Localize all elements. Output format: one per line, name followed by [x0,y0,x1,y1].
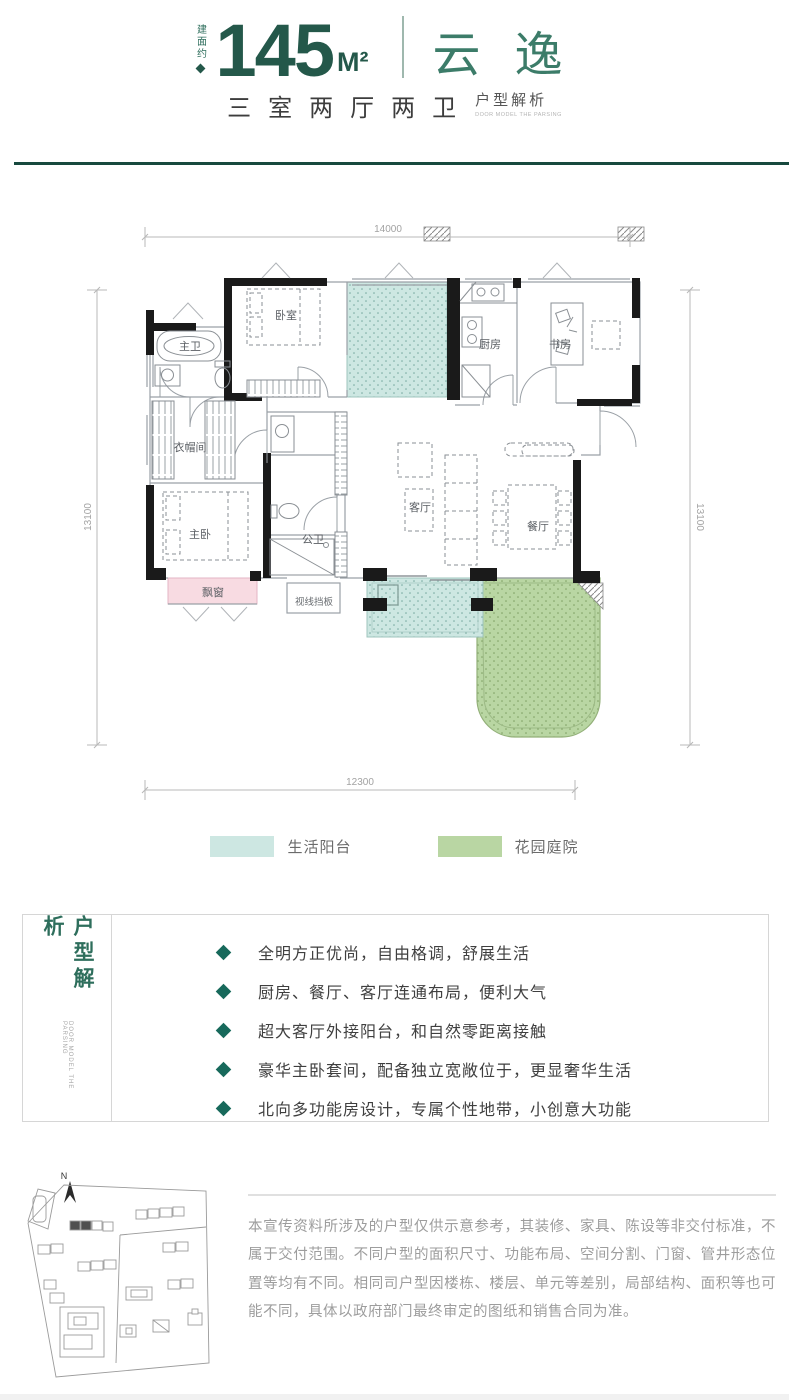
dim-bottom: 12300 [346,777,374,788]
label-living-room: 客厅 [409,500,431,514]
subtitle-tag-text: 户型解析 [475,89,562,110]
analysis-side-title: 户型解析 DOOR MODEL THE PARSING [23,915,112,1121]
dim-left: 13100 [83,503,94,531]
area-unit: M² [337,47,368,78]
diamond-bullet-icon [216,1022,232,1038]
bullet-text: 超大客厅外接阳台，和自然零距离接触 [258,1018,547,1042]
diamond-bullet-icon [216,983,232,999]
header: 建面约 145 M² 云逸 [0,16,789,82]
legend-label-balcony: 生活阳台 [287,836,351,857]
dim-top: 14000 [374,224,402,235]
bullet-text: 厨房、餐厅、客厅连通布局，便利大气 [258,979,547,1003]
bullet-row: 北向多功能房设计，专属个性地带，小创意大功能 [218,1096,758,1120]
legend-item-garden: 花园庭院 [438,836,579,857]
label-kitchen: 厨房 [479,338,501,351]
analysis-panel: 户型解析 DOOR MODEL THE PARSING 全明方正优尚，自由格调，… [22,914,769,1122]
compass-label: N [61,1171,68,1181]
legend: 生活阳台 花园庭院 [0,836,789,857]
subtitle-tag: 户型解析 DOOR MODEL THE PARSING [475,89,562,118]
bullet-text: 全明方正优尚，自由格调，舒展生活 [258,940,530,964]
label-cloakroom: 衣帽间 [174,440,207,454]
label-bay-window: 飘窗 [202,585,224,599]
bullet-text: 北向多功能房设计，专属个性地带，小创意大功能 [258,1096,632,1120]
floor-plan: 主卫 卧室 厨房 书房 衣帽间 主卧 公卫 客厅 餐厅 飘窗 视线挡板 1400… [0,215,789,815]
layout-subtitle: 三室两厅两卫 [227,88,473,123]
legend-item-balcony: 生活阳台 [210,836,351,857]
label-study: 书房 [549,338,571,351]
north-arrow-icon [64,1181,76,1203]
bullet-row: 厨房、餐厅、客厅连通布局，便利大气 [218,979,758,1003]
vertical-divider [402,16,404,78]
diamond-bullet-icon [216,1061,232,1077]
header-divider-rule [14,162,789,165]
legend-label-garden: 花园庭院 [515,836,579,857]
disclaimer-text: 本宣传资料所涉及的户型仅供示意参考，其装修、家具、陈设等非交付标准，不属于交付范… [248,1194,776,1326]
top-balcony-zone [347,282,447,397]
flue-hatch [424,227,644,241]
bullet-text: 豪华主卧套间，配备独立宽敞位于，更显奢华生活 [258,1057,632,1081]
legend-swatch-garden [438,836,502,857]
label-guest-bath: 公卫 [302,534,324,546]
label-sight-baffle: 视线挡板 [295,596,334,608]
footer-strip [0,1394,789,1400]
label-bedroom: 卧室 [275,308,297,322]
analysis-title: 户型解析 [37,915,97,1015]
compass: N [61,1171,76,1203]
label-master-bath: 主卫 [179,340,201,353]
page: { "colors":{ "accent_dark":"#24584a","ac… [0,0,789,1400]
label-dining-room: 餐厅 [527,519,549,533]
dim-right: 13100 [694,503,705,531]
diamond-bullet-icon [216,944,232,960]
garden-courtyard-zone [477,578,603,737]
label-master-bedroom: 主卧 [189,528,211,541]
area-label: 建面约 [193,24,208,72]
area-label-text: 建面约 [193,24,208,60]
plan-name: 云逸 [432,32,596,80]
diamond-dot-icon [195,64,205,74]
area-value: 145 [216,21,333,82]
subheader: 三室两厅两卫 户型解析 DOOR MODEL THE PARSING [0,88,789,123]
subtitle-tag-english: DOOR MODEL THE PARSING [475,112,562,118]
analysis-title-english: DOOR MODEL THE PARSING [61,1021,73,1121]
bullet-row: 全明方正优尚，自由格调，舒展生活 [218,940,758,964]
diamond-bullet-icon [216,1100,232,1116]
legend-swatch-balcony [210,836,274,857]
site-plan: N [8,1165,240,1393]
bullet-row: 超大客厅外接阳台，和自然零距离接触 [218,1018,758,1042]
analysis-bullets: 全明方正优尚，自由格调，舒展生活 厨房、餐厅、客厅连通布局，便利大气 超大客厅外… [112,915,768,1121]
bullet-row: 豪华主卧套间，配备独立宽敞位于，更显奢华生活 [218,1057,758,1081]
